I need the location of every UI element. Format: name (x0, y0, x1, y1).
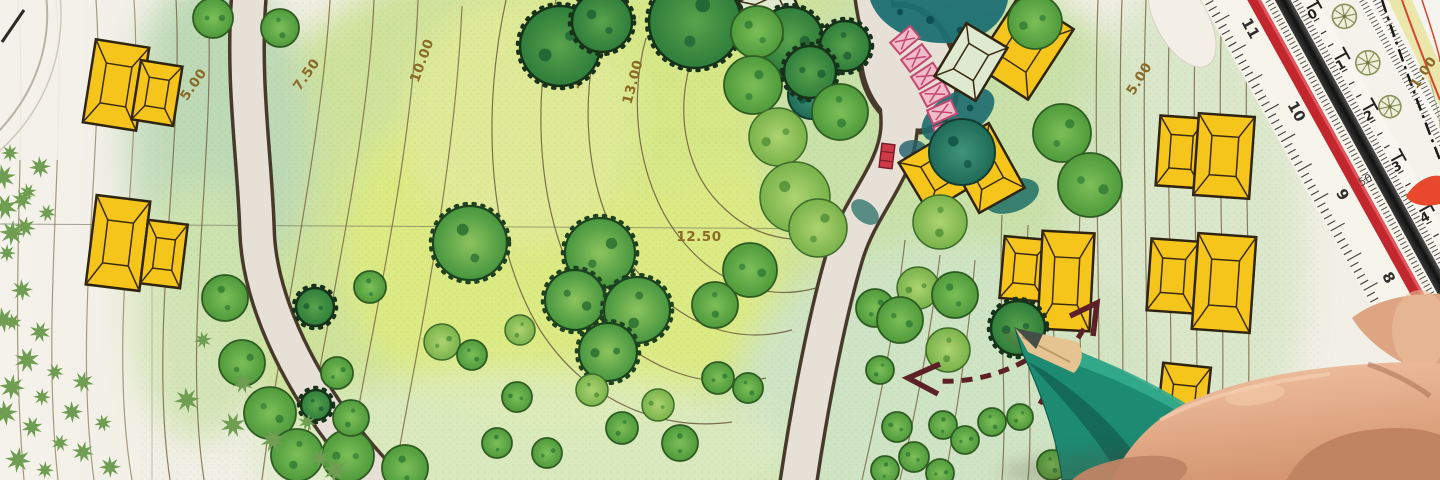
tree-foliage-speckle (817, 70, 825, 78)
tree-foliage-speckle (943, 355, 950, 362)
tree-foliage-speckle (289, 461, 297, 469)
tree-foliage-speckle (1065, 119, 1074, 128)
tree-foliage-speckle (587, 383, 591, 387)
tree-foliage-speckle (369, 292, 373, 296)
tree-foliage-speckle (366, 278, 371, 283)
tree-foliage-speckle (353, 453, 359, 459)
site-plan-canvas: 5.007.5010.0012.5013.0012.5012.505.00 (0, 0, 1440, 480)
tree-foliage-speckle (937, 207, 943, 213)
tree-foliage-speckle (1039, 15, 1045, 21)
tree-canopy (702, 362, 734, 394)
tree-foliage-speckle (520, 396, 524, 400)
tree-foliage-speckle (946, 338, 951, 343)
tree (424, 324, 460, 360)
tree-foliage-speckle (1053, 140, 1060, 147)
tree-foliage-speckle (649, 401, 654, 406)
tree-foliage-speckle (883, 475, 886, 478)
tree (606, 412, 638, 444)
tree (702, 362, 734, 394)
tree (724, 56, 782, 114)
tree (978, 408, 1006, 436)
tree-canopy (724, 56, 782, 114)
tree (877, 297, 923, 343)
tree-canopy (913, 195, 967, 249)
building (132, 60, 183, 126)
tree-foliage-speckle (260, 403, 266, 409)
tree (482, 428, 512, 458)
tree (457, 340, 487, 370)
tree-foliage-speckle (496, 448, 500, 452)
tree-canopy (572, 0, 632, 52)
tree-foliage-speckle (628, 318, 639, 329)
tree-foliage-speckle (514, 333, 519, 338)
tree (502, 382, 532, 412)
tree-foliage-speckle (588, 260, 596, 268)
tree-canopy (502, 382, 532, 412)
tree-canopy (505, 315, 535, 345)
tree (1058, 153, 1122, 217)
tree-foliage-speckle (888, 422, 893, 427)
building-footprint (132, 60, 183, 126)
tree-canopy (932, 272, 978, 318)
tree-foliage-speckle (712, 292, 718, 298)
tree-foliage-speckle (874, 372, 878, 376)
tree-canopy (424, 324, 460, 360)
tree-foliage-speckle (1021, 411, 1024, 414)
tree-canopy (899, 442, 929, 472)
tree-foliage-speckle (799, 67, 805, 73)
tree-foliage-speckle (678, 449, 682, 453)
tree-foliage-speckle (296, 441, 302, 447)
tree (1007, 404, 1033, 430)
tree (733, 373, 763, 403)
tree-foliage-speckle (340, 367, 345, 372)
building-footprint (1147, 238, 1200, 313)
tree-foliage-speckle (744, 381, 748, 385)
tree-canopy (606, 412, 638, 444)
tree-canopy (929, 119, 995, 185)
tree-foliage-speckle (820, 214, 829, 223)
building (1192, 233, 1257, 333)
tree (812, 84, 868, 140)
tree (576, 374, 608, 406)
tree-foliage-speckle (906, 320, 913, 327)
tree-foliage-speckle (470, 254, 479, 263)
tree-foliage-speckle (757, 268, 766, 277)
tree-canopy (662, 425, 698, 461)
tree (929, 119, 995, 185)
tree-foliage-speckle (467, 348, 471, 352)
tree-foliage-speckle (587, 10, 597, 20)
tree-foliage-speckle (759, 37, 765, 43)
tree-foliage-speckle (331, 375, 335, 379)
tree-foliage-speckle (906, 452, 911, 457)
tree-foliage-speckle (494, 435, 499, 440)
tree-foliage-speckle (810, 236, 817, 243)
tree-foliage-speckle (754, 70, 763, 79)
tree-foliage-speckle (993, 425, 997, 429)
tree (193, 0, 233, 38)
tree (570, 0, 635, 55)
tree (1008, 0, 1062, 49)
tree-foliage-speckle (219, 15, 225, 21)
tree-canopy (749, 108, 807, 166)
tree (662, 425, 698, 461)
tree (926, 459, 954, 480)
building (1193, 113, 1255, 199)
tree-foliage-speckle (959, 440, 962, 443)
tree-canopy (1058, 153, 1122, 217)
tree-canopy (354, 271, 386, 303)
car-body (879, 143, 895, 168)
tree-canopy (296, 288, 334, 326)
tree-foliage-speckle (590, 348, 599, 357)
tree-canopy (202, 275, 248, 321)
tree-foliage-speckle (276, 18, 281, 23)
tree-foliage-speckle (749, 391, 754, 396)
tree-canopy (951, 426, 979, 454)
tree-foliage-speckle (582, 301, 592, 311)
tree-canopy (812, 84, 868, 140)
tree-foliage-speckle (435, 344, 439, 348)
tree-foliage-speckle (398, 455, 405, 462)
tree (789, 199, 847, 257)
tree (899, 442, 929, 472)
tree (866, 356, 894, 384)
tree-canopy (333, 400, 369, 436)
tree-foliage-speckle (969, 437, 973, 441)
tree (354, 271, 386, 303)
tree-foliage-speckle (318, 306, 323, 311)
tree (731, 6, 783, 58)
tree-foliage-speckle (551, 448, 556, 453)
tree-foliage-speckle (319, 406, 324, 411)
tree-canopy (1007, 404, 1033, 430)
car-symbol (879, 143, 895, 168)
tree-foliage-speckle (225, 305, 231, 311)
building (140, 220, 188, 288)
tree-foliage-speckle (623, 420, 627, 424)
tree-canopy (692, 282, 738, 328)
shrub-star-symbol (1, 144, 19, 162)
tree-foliage-speckle (205, 16, 210, 21)
tree-foliage-speckle (605, 27, 612, 34)
tree (505, 315, 535, 345)
building (1147, 238, 1200, 313)
tree-foliage-speckle (837, 119, 846, 128)
tree-foliage-speckle (635, 292, 643, 300)
tree-foliage-speckle (761, 137, 770, 146)
tree-foliage-speckle (345, 422, 351, 428)
building-footprint (1193, 113, 1255, 199)
tree-foliage-speckle (934, 472, 937, 475)
tree-foliage-speckle (279, 32, 285, 38)
tree-foliage-speckle (275, 415, 283, 423)
tree-foliage-speckle (539, 49, 552, 62)
tree-foliage-speckle (722, 373, 727, 378)
tree-canopy (301, 390, 331, 420)
tree-canopy (193, 0, 233, 38)
tree-foliage-speckle (616, 431, 621, 436)
tree-foliage-speckle (746, 93, 753, 100)
tree-foliage-speckle (508, 393, 513, 398)
tree-foliage-speckle (474, 357, 479, 362)
tree-foliage-speckle (684, 36, 695, 47)
tree-foliage-speckle (941, 430, 944, 433)
map-margin-path (0, 0, 82, 160)
tree-canopy (457, 340, 487, 370)
tree-foliage-speckle (613, 348, 620, 355)
tree-canopy (733, 373, 763, 403)
tree-foliage-speckle (520, 322, 524, 326)
tree-canopy (532, 438, 562, 468)
tree-foliage-speckle (1023, 323, 1029, 329)
tree-canopy (926, 459, 954, 480)
tree-canopy (482, 428, 512, 458)
tree (532, 438, 562, 468)
tree-foliage-speckle (246, 354, 253, 361)
tree-foliage-speckle (446, 336, 452, 342)
tree-foliage-speckle (946, 283, 953, 290)
tree-foliage-speckle (1098, 184, 1108, 194)
tree-foliage-speckle (606, 238, 617, 249)
tree-foliage-speckle (869, 312, 874, 317)
tree-canopy (731, 6, 783, 58)
tree-foliage-speckle (1014, 419, 1018, 423)
tree-foliage-speckle (218, 286, 225, 293)
tree-canopy (642, 389, 674, 421)
tree-canopy (978, 408, 1006, 436)
tree-foliage-speckle (988, 415, 991, 418)
tree-foliage-speckle (899, 428, 903, 432)
tree-foliage-speckle (944, 470, 948, 474)
tree-foliage-speckle (1077, 176, 1085, 184)
tree-foliage-speckle (941, 417, 945, 421)
tree-foliage-speckle (836, 96, 843, 103)
tree-foliage-speckle (891, 313, 897, 319)
tree-foliage-speckle (739, 264, 745, 270)
tree-foliage-speckle (881, 363, 884, 366)
tree-foliage-speckle (311, 399, 315, 403)
tree-foliage-speckle (351, 408, 355, 412)
tree-canopy (261, 9, 299, 47)
tree (642, 389, 674, 421)
tree-foliage-speckle (964, 160, 972, 168)
tree-foliage-speckle (712, 378, 716, 382)
tree-foliage-speckle (1019, 21, 1028, 30)
tree-canopy (882, 412, 912, 442)
tree-canopy (433, 206, 507, 280)
tree-foliage-speckle (677, 433, 683, 439)
tree-foliage-speckle (332, 452, 340, 460)
tree-foliage-speckle (916, 458, 920, 462)
contour-elevation-label: 12.50 (676, 229, 721, 245)
tree-canopy (789, 199, 847, 257)
tree-foliage-speckle (956, 301, 962, 307)
tree-foliage-speckle (922, 283, 927, 288)
tree-foliage-speckle (661, 405, 665, 409)
tree-foliage-speckle (594, 392, 599, 397)
tree (932, 272, 978, 318)
tree (692, 282, 738, 328)
tree (261, 9, 299, 47)
tree (913, 195, 967, 249)
tree (202, 275, 248, 321)
tree-foliage-speckle (779, 181, 790, 192)
landscape-plan-photo: 5.007.5010.0012.5013.0012.5012.505.00 (0, 0, 1440, 480)
tree-foliage-speckle (843, 52, 851, 60)
tree-foliage-speckle (782, 128, 789, 135)
tree-foliage-speckle (541, 454, 545, 458)
tree (871, 456, 899, 480)
tree-foliage-speckle (935, 228, 944, 237)
tree (882, 412, 912, 442)
tree-foliage-speckle (712, 311, 719, 318)
tree-canopy (576, 374, 608, 406)
tree (321, 357, 353, 389)
tree-foliage-speckle (234, 367, 240, 373)
building-footprint (140, 220, 188, 288)
tree-foliage-speckle (884, 462, 888, 466)
tree-foliage-speckle (905, 287, 912, 294)
tree-canopy (321, 357, 353, 389)
tree-canopy (866, 356, 894, 384)
tree-foliage-speckle (948, 136, 959, 147)
tree-foliage-speckle (744, 21, 752, 29)
building-footprint (1192, 233, 1257, 333)
tree-canopy (1008, 0, 1062, 49)
tree (951, 426, 979, 454)
tree-foliage-speckle (840, 32, 846, 38)
tree-canopy (877, 297, 923, 343)
tree (749, 108, 807, 166)
tree-canopy (579, 323, 637, 381)
tree-foliage-speckle (457, 224, 469, 236)
tree (333, 400, 369, 436)
tree-foliage-speckle (303, 303, 309, 309)
tree-foliage-speckle (564, 290, 571, 297)
